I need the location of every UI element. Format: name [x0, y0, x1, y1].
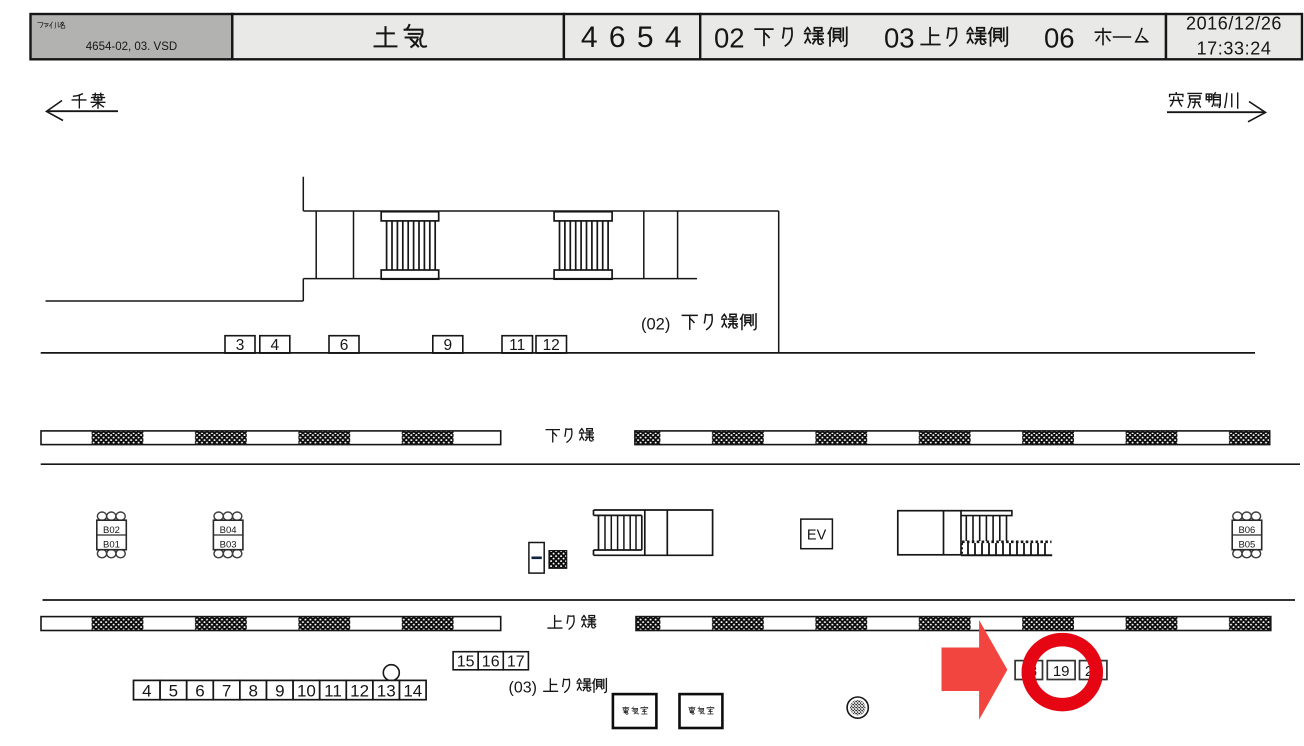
svg-text:9: 9 — [443, 337, 452, 354]
svg-text:4: 4 — [142, 681, 151, 700]
svg-text:(02): (02) — [641, 316, 670, 334]
svg-text:B01: B01 — [103, 539, 120, 550]
svg-text:B03: B03 — [220, 539, 237, 550]
svg-text:13: 13 — [377, 681, 396, 700]
svg-text:12: 12 — [543, 337, 560, 354]
svg-text:11: 11 — [324, 681, 342, 700]
svg-text:7: 7 — [222, 681, 231, 700]
svg-text:03: 03 — [884, 23, 915, 54]
svg-text:(03): (03) — [509, 679, 537, 696]
svg-text:19: 19 — [1053, 663, 1070, 680]
svg-text:2016/12/26: 2016/12/26 — [1186, 14, 1282, 34]
svg-text:5: 5 — [169, 681, 178, 700]
svg-text:8: 8 — [248, 681, 257, 700]
svg-text:16: 16 — [482, 654, 500, 671]
svg-text:B02: B02 — [103, 525, 120, 536]
svg-text:4: 4 — [270, 337, 279, 354]
svg-text:12: 12 — [350, 681, 369, 700]
svg-text:9: 9 — [275, 681, 284, 700]
svg-text:17: 17 — [507, 654, 525, 671]
svg-text:14: 14 — [403, 681, 422, 700]
svg-text:11: 11 — [509, 337, 525, 354]
svg-text:B04: B04 — [220, 525, 237, 536]
svg-text:02: 02 — [714, 23, 745, 54]
svg-text:3: 3 — [236, 337, 245, 354]
svg-text:B06: B06 — [1238, 525, 1255, 536]
svg-text:B05: B05 — [1238, 539, 1255, 550]
svg-text:10: 10 — [297, 681, 316, 700]
svg-text:17:33:24: 17:33:24 — [1197, 39, 1272, 59]
svg-text:6: 6 — [340, 337, 349, 354]
svg-text:6: 6 — [195, 681, 204, 700]
svg-text:15: 15 — [457, 654, 475, 671]
svg-text:4654-02, 03. VSD: 4654-02, 03. VSD — [86, 41, 177, 53]
svg-text:4 6 5 4: 4 6 5 4 — [581, 21, 683, 54]
svg-text:06: 06 — [1044, 23, 1075, 54]
svg-text:EV: EV — [807, 528, 827, 544]
